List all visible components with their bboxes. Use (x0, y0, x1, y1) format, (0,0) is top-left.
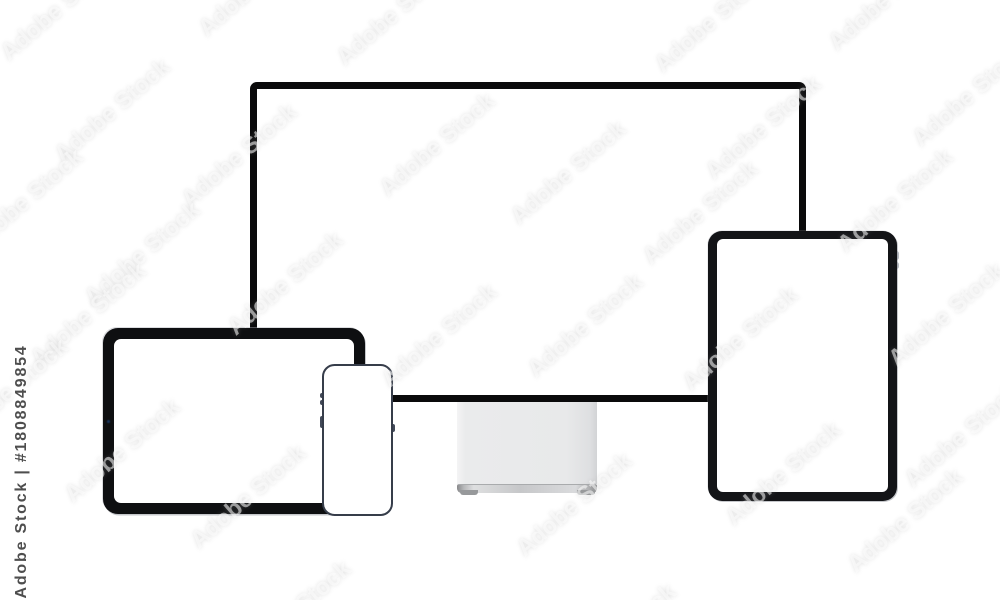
svg-text:Adobe Stock | #1808849854: Adobe Stock | #1808849854 (13, 344, 30, 598)
